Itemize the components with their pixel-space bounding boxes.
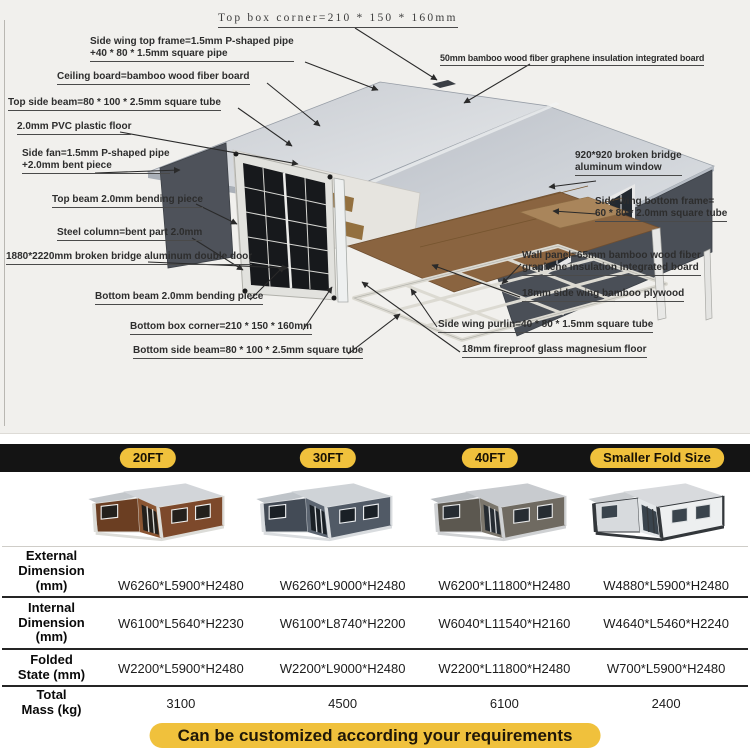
- spec-value: W4640*L5460*H2240: [585, 598, 747, 648]
- spec-value: W2200*L11800*H2480: [424, 651, 586, 685]
- spec-row-internal-dimension: Internal Dimension (mm) W6100*L5640*H223…: [3, 598, 747, 648]
- spec-value: 2400: [585, 687, 747, 719]
- exploded-diagram-section: Top box corner=210 * 150 * 160mm Side wi…: [0, 0, 750, 434]
- spec-value: W6100*L5640*H2230: [100, 598, 262, 648]
- diagram-label-pvc-floor: 2.0mm PVC plastic floor: [17, 121, 131, 135]
- double-door: [234, 152, 337, 301]
- spec-value: 3100: [100, 687, 262, 719]
- diagram-label-top-beam: Top beam 2.0mm bending piece: [52, 194, 203, 208]
- customization-banner: Can be customized according your require…: [150, 723, 601, 748]
- diagram-label-ceiling-board: Ceiling board=bamboo wood fiber board: [57, 71, 250, 85]
- row-label: External Dimension (mm): [3, 547, 100, 596]
- product-image-30ft: [247, 477, 405, 543]
- tab-40ft[interactable]: 40FT: [462, 448, 518, 468]
- diagram-label-wall-panel: Wall panel=65mm bamboo wood fiber graphe…: [522, 250, 701, 276]
- spec-row-folded-state: Folded State (mm) W2200*L5900*H2480 W220…: [3, 651, 747, 685]
- diagram-label-double-door: 1880*2220mm broken bridge aluminum doubl…: [6, 251, 252, 265]
- diagram-label-fireproof-floor: 18mm fireproof glass magnesium floor: [462, 344, 647, 358]
- product-image-smaller-fold: [579, 477, 737, 543]
- spec-value: W6040*L11540*H2160: [424, 598, 586, 648]
- diagram-label-insulation-board: 50mm bamboo wood fiber graphene insulati…: [440, 53, 704, 66]
- spec-table-section: 20FT 30FT 40FT Smaller Fold Size Externa…: [0, 434, 750, 750]
- diagram-label-side-wing-plywood: 18mm side wing bamboo plywood: [522, 288, 684, 302]
- tab-20ft[interactable]: 20FT: [120, 448, 176, 468]
- product-image-20ft: [79, 477, 237, 543]
- row-label: Folded State (mm): [3, 651, 100, 685]
- diagram-label-steel-column: Steel column=bent part 2.0mm: [57, 227, 202, 241]
- size-tab-bar: 20FT 30FT 40FT Smaller Fold Size: [0, 444, 750, 472]
- diagram-label-side-wing-bottom-frame: Side wing bottom frame= 60 * 80 * 2.0mm …: [595, 196, 727, 222]
- spec-value: 4500: [262, 687, 424, 719]
- diagram-label-side-wing-purlin: Side wing purlin=40 * 80 * 1.5mm square …: [438, 319, 653, 333]
- diagram-label-side-fan: Side fan=1.5mm P-shaped pipe +2.0mm bent…: [22, 148, 170, 174]
- product-spec-page: Top box corner=210 * 150 * 160mm Side wi…: [0, 0, 750, 750]
- row-label: Total Mass (kg): [3, 687, 100, 719]
- diagram-label-top-side-beam: Top side beam=80 * 100 * 2.5mm square tu…: [8, 97, 221, 111]
- diagram-label-bottom-beam: Bottom beam 2.0mm bending piece: [95, 291, 263, 305]
- spec-row-external-dimension: External Dimension (mm) W6260*L5900*H248…: [3, 547, 747, 596]
- diagram-label-aluminum-window: 920*920 broken bridge aluminum window: [575, 150, 682, 176]
- spec-value: W2200*L9000*H2480: [262, 651, 424, 685]
- spec-value: 6100: [424, 687, 586, 719]
- spec-value: W4880*L5900*H2480: [585, 547, 747, 596]
- product-image-40ft: [421, 477, 579, 543]
- spec-value: W2200*L5900*H2480: [100, 651, 262, 685]
- row-divider: [2, 648, 748, 650]
- diagram-label-top-box-corner: Top box corner=210 * 150 * 160mm: [218, 12, 458, 28]
- spec-value: W6260*L5900*H2480: [100, 547, 262, 596]
- tab-smaller-fold-size[interactable]: Smaller Fold Size: [590, 448, 724, 468]
- diagram-label-side-wing-top-frame: Side wing top frame=1.5mm P-shaped pipe …: [90, 36, 294, 62]
- row-label: Internal Dimension (mm): [3, 598, 100, 648]
- diagram-label-bottom-box-corner: Bottom box corner=210 * 150 * 160mm: [130, 321, 312, 335]
- tab-30ft[interactable]: 30FT: [300, 448, 356, 468]
- diagram-label-bottom-side-beam: Bottom side beam=80 * 100 * 2.5mm square…: [133, 345, 363, 359]
- spec-value: W6200*L11800*H2480: [424, 547, 586, 596]
- spec-value: W700*L5900*H2480: [585, 651, 747, 685]
- spec-value: W6260*L9000*H2480: [262, 547, 424, 596]
- spec-row-total-mass: Total Mass (kg) 3100 4500 6100 2400: [3, 687, 747, 719]
- spec-value: W6100*L8740*H2200: [262, 598, 424, 648]
